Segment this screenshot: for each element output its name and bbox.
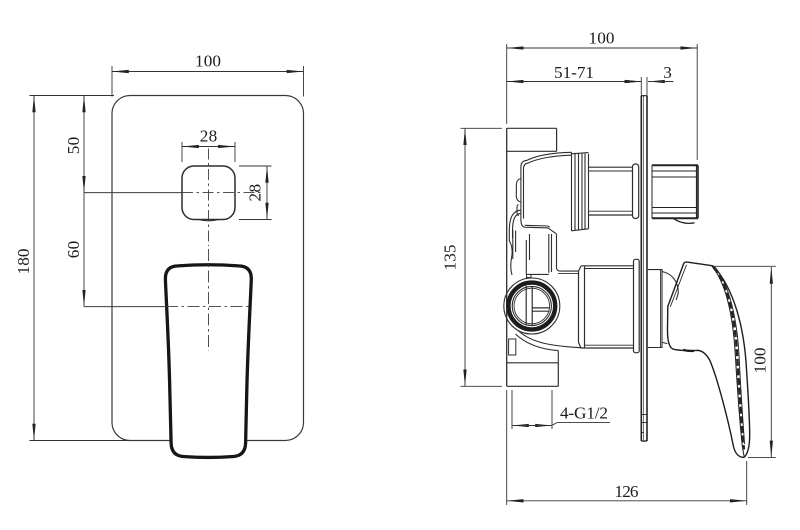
svg-text:4-G1/2: 4-G1/2	[560, 404, 608, 423]
svg-text:51-71: 51-71	[554, 63, 594, 82]
svg-text:60: 60	[64, 241, 83, 259]
svg-text:28: 28	[200, 127, 218, 146]
svg-text:126: 126	[615, 482, 639, 501]
svg-text:100: 100	[751, 348, 770, 374]
svg-text:100: 100	[195, 52, 221, 71]
svg-text:100: 100	[589, 29, 615, 48]
svg-text:50: 50	[64, 137, 83, 155]
svg-text:180: 180	[14, 249, 33, 275]
svg-text:135: 135	[441, 245, 460, 271]
svg-text:3: 3	[663, 63, 672, 82]
svg-text:28: 28	[246, 184, 265, 202]
